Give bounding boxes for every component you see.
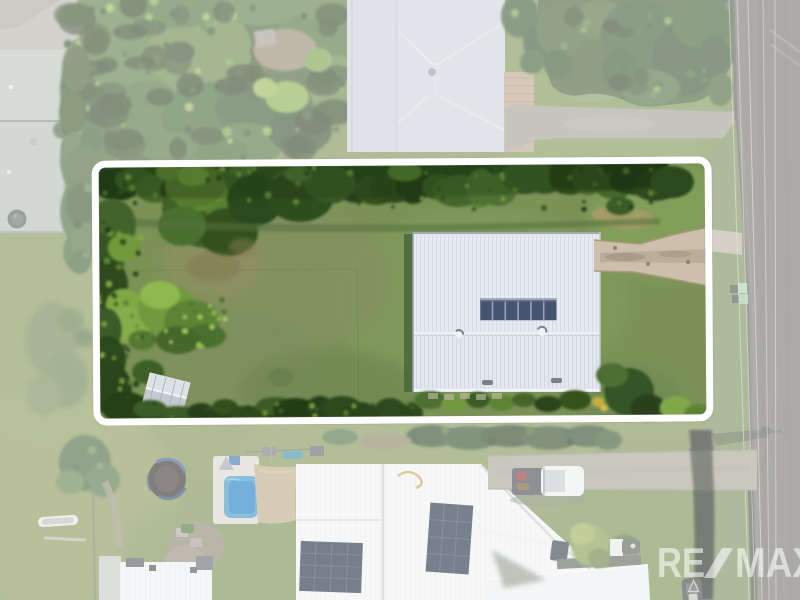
svg-text:MAX: MAX <box>735 539 800 586</box>
svg-text:RE: RE <box>657 539 705 586</box>
